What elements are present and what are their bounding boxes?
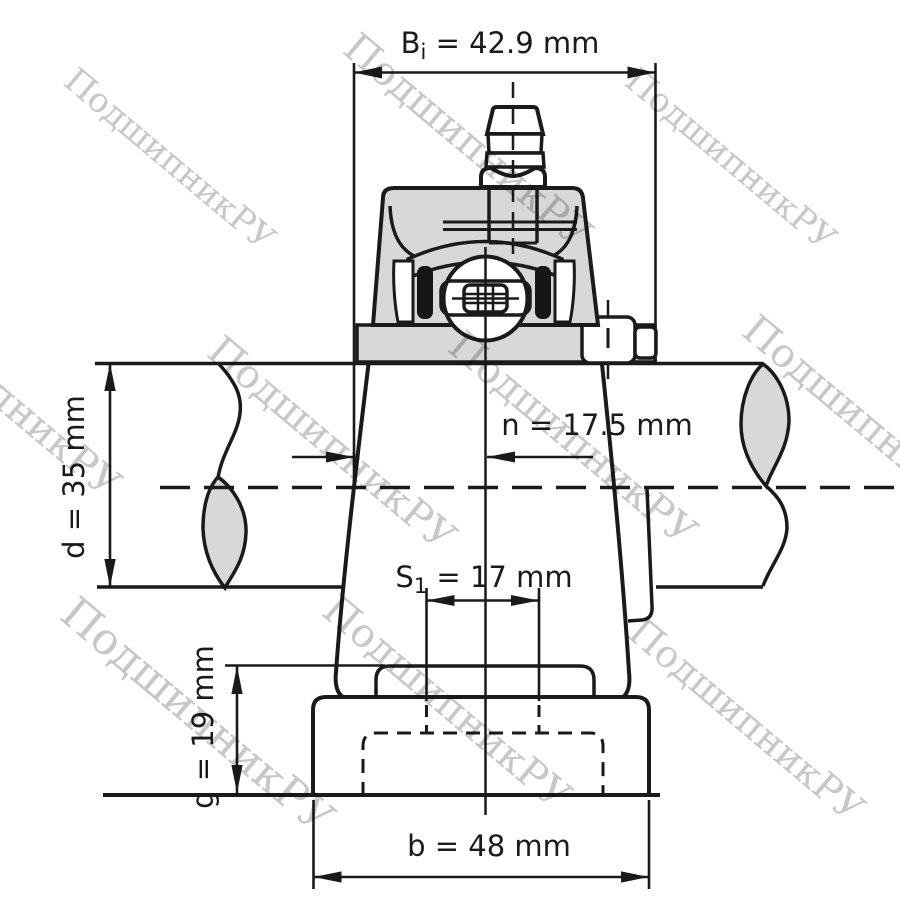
bearing-technical-drawing: Bi = 42.9 mm d = 35 mm n = 17.5 mm S1 = … (0, 0, 900, 900)
seal-pocket-right (555, 261, 574, 322)
seal-left (417, 266, 433, 319)
bearing-drawing-page: Bi = 42.9 mm d = 35 mm n = 17.5 mm S1 = … (0, 0, 900, 900)
seal-pocket-left (394, 261, 413, 322)
b-label: b = 48 mm (407, 829, 571, 863)
bi-label: Bi = 42.9 mm (401, 26, 600, 64)
inner-ring-end (635, 327, 656, 358)
fitting-dome (487, 107, 543, 134)
seal-right (535, 266, 551, 319)
